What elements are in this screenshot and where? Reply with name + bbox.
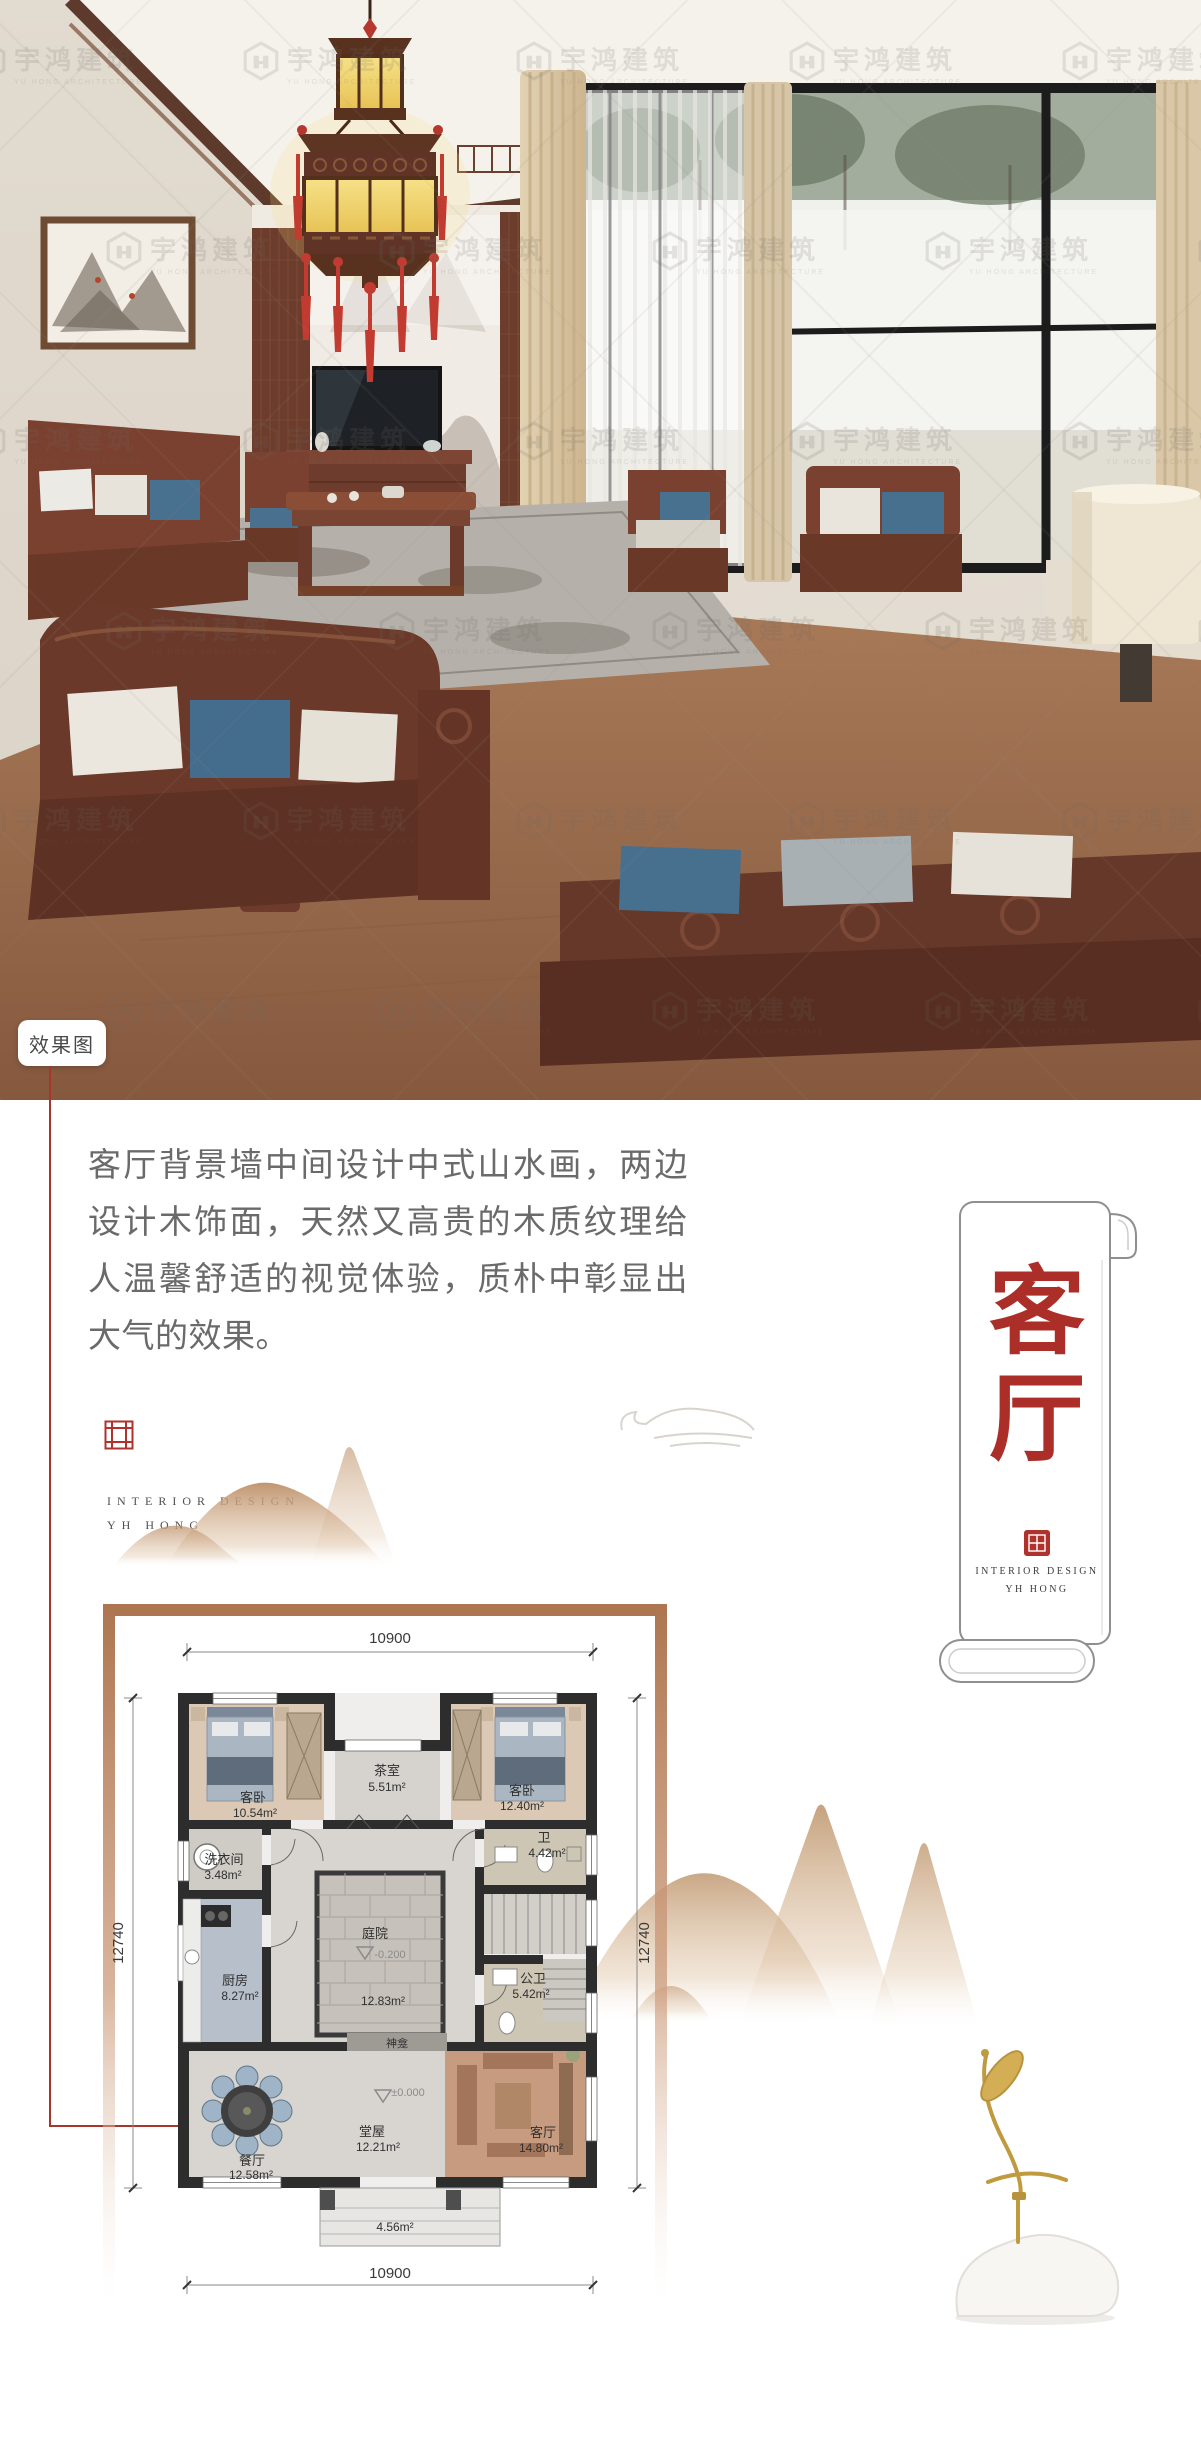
brand-hexagon-logo-icon	[652, 611, 688, 656]
brand-hexagon-logo-icon	[1062, 41, 1098, 86]
scroll-title-char1: 客	[989, 1259, 1085, 1366]
brand-hexagon-logo-icon	[516, 41, 552, 86]
svg-text:12.40m²: 12.40m²	[500, 1799, 544, 1813]
brand-hexagon-logo-icon	[379, 611, 415, 656]
svg-text:公卫: 公卫	[520, 1971, 546, 1986]
brand-watermark: 宇鸿建筑YU HONG ARCHITECTURE	[1062, 800, 1201, 846]
svg-text:4.56m²: 4.56m²	[376, 2220, 413, 2234]
svg-text:12.21m²: 12.21m²	[356, 2140, 400, 2154]
brand-watermark: 宇鸿建筑YU HONG ARCHITECTURE	[516, 800, 689, 846]
gold-branch-ornament	[930, 2030, 1130, 2330]
svg-text:茶室: 茶室	[374, 1763, 400, 1778]
brand-watermark: 宇鸿建筑YU HONG ARCHITECTURE	[652, 610, 825, 656]
brand-hexagon-logo-icon	[0, 41, 6, 86]
brand-hexagon-logo-icon	[243, 41, 279, 86]
svg-text:3.48m²: 3.48m²	[204, 1868, 241, 1882]
brand-hexagon-logo-icon	[652, 231, 688, 276]
svg-text:5.42m²: 5.42m²	[512, 1987, 549, 2001]
brand-hexagon-logo-icon	[379, 231, 415, 276]
svg-text:客厅: 客厅	[530, 2125, 556, 2140]
brand-hexagon-logo-icon	[789, 41, 825, 86]
scroll-title-char2: 厅	[989, 1366, 1085, 1473]
brand-hexagon-logo-icon	[1062, 801, 1098, 846]
brand-watermark: 宇鸿建筑YU HONG ARCHITECTURE	[106, 610, 279, 656]
svg-text:12.83m²: 12.83m²	[361, 1994, 405, 2008]
brand-hexagon-logo-icon	[652, 991, 688, 1036]
brand-hexagon-logo-icon	[789, 421, 825, 466]
brand-hexagon-logo-icon	[925, 991, 961, 1036]
brand-hexagon-logo-icon	[379, 991, 415, 1036]
svg-text:堂屋: 堂屋	[359, 2124, 385, 2139]
stone-base	[956, 2235, 1118, 2316]
brand-watermark: 宇鸿建筑YU HONG ARCHITECTURE	[1062, 420, 1201, 466]
brand-watermark: 宇鸿建筑YU HONG ARCHITECTURE	[652, 990, 825, 1036]
svg-text:12.58m²: 12.58m²	[229, 2168, 273, 2182]
brand-watermark: 宇鸿建筑YU HONG ARCHITECTURE	[106, 230, 279, 276]
svg-text:餐厅: 餐厅	[239, 2153, 265, 2168]
brand-watermark: 宇鸿建筑YU HONG ARCHITECTURE	[789, 40, 962, 86]
brand-watermark: 宇鸿建筑YU HONG ARCHITECTURE	[516, 40, 689, 86]
svg-text:客卧: 客卧	[509, 1783, 535, 1798]
brand-watermark: 宇鸿建筑YU HONG ARCHITECTURE	[789, 800, 962, 846]
svg-text:14.80m²: 14.80m²	[519, 2141, 563, 2155]
dim-right: 12740	[636, 1922, 653, 1964]
scroll-brand-line1: INTERIOR DESIGN	[975, 1566, 1098, 1577]
brand-watermark: 宇鸿建筑YU HONG ARCHITECTURE	[925, 230, 1098, 276]
poster-page: 宇鸿建筑YU HONG ARCHITECTURE宇鸿建筑YU HONG ARCH…	[0, 0, 1201, 2458]
scroll-seal	[1024, 1530, 1050, 1556]
connector-line-vertical	[49, 1066, 51, 2126]
brand-hexagon-logo-icon	[516, 801, 552, 846]
svg-text:庭院: 庭院	[362, 1926, 388, 1941]
brand-watermark: 宇鸿建筑YU HONG ARCHITECTURE	[106, 990, 279, 1036]
mountains-left	[85, 1432, 415, 1567]
svg-text:±0.000: ±0.000	[391, 2087, 425, 2099]
brand-watermark: 宇鸿建筑YU HONG ARCHITECTURE	[0, 800, 143, 846]
brand-hexagon-logo-icon	[0, 421, 6, 466]
brand-hexagon-logo-icon	[106, 231, 142, 276]
brand-watermark: 宇鸿建筑YU HONG ARCHITECTURE	[379, 990, 552, 1036]
brand-hexagon-logo-icon	[0, 801, 6, 846]
intro-paragraph: 客厅背景墙中间设计中式山水画，两边设计木饰面，天然又高贵的木质纹理给人温馨舒适的…	[88, 1136, 688, 1364]
living-room-render-photo: 宇鸿建筑YU HONG ARCHITECTURE宇鸿建筑YU HONG ARCH…	[0, 0, 1201, 1100]
brand-watermark: 宇鸿建筑YU HONG ARCHITECTURE	[516, 420, 689, 466]
brand-watermark: 宇鸿建筑YU HONG ARCHITECTURE	[379, 610, 552, 656]
brand-watermark: 宇鸿建筑YU HONG ARCHITECTURE	[1062, 40, 1201, 86]
brand-hexagon-logo-icon	[243, 801, 279, 846]
dining-table	[202, 2066, 292, 2156]
svg-text:卫: 卫	[537, 1830, 550, 1845]
brand-watermark: 宇鸿建筑YU HONG ARCHITECTURE	[0, 420, 143, 466]
brand-hexagon-logo-icon	[243, 421, 279, 466]
brand-hexagon-logo-icon	[1062, 421, 1098, 466]
dim-top: 10900	[369, 1630, 411, 1647]
svg-text:4.42m²: 4.42m²	[528, 1846, 565, 1860]
brand-watermark: 宇鸿建筑YU HONG ARCHITECTURE	[243, 800, 416, 846]
brand-watermark: 宇鸿建筑YU HONG ARCHITECTURE	[925, 610, 1098, 656]
svg-text:洗衣间: 洗衣间	[204, 1852, 243, 1867]
floor-plan: 10900 10900 12740 12740	[95, 1595, 675, 2365]
svg-text:神龛: 神龛	[386, 2036, 408, 2050]
brand-watermark: 宇鸿建筑YU HONG ARCHITECTURE	[243, 420, 416, 466]
brand-hexagon-logo-icon	[516, 421, 552, 466]
scroll-brand-line2: YH HONG	[1005, 1584, 1068, 1595]
svg-text:厨房: 厨房	[222, 1973, 248, 1988]
porch	[320, 2188, 500, 2246]
svg-text:客卧: 客卧	[240, 1790, 266, 1805]
brand-watermark: 宇鸿建筑YU HONG ARCHITECTURE	[243, 40, 416, 86]
svg-text:-0.200: -0.200	[374, 1949, 405, 1961]
watermark-layer: 宇鸿建筑YU HONG ARCHITECTURE宇鸿建筑YU HONG ARCH…	[0, 0, 1201, 1100]
svg-text:5.51m²: 5.51m²	[368, 1780, 405, 1794]
brand-watermark: 宇鸿建筑YU HONG ARCHITECTURE	[925, 990, 1098, 1036]
brand-hexagon-logo-icon	[925, 611, 961, 656]
dim-left: 12740	[110, 1922, 127, 1964]
svg-text:10.54m²: 10.54m²	[233, 1806, 277, 1820]
brand-watermark: 宇鸿建筑YU HONG ARCHITECTURE	[379, 230, 552, 276]
title-scroll: 客 厅 INTERIOR DESIGN YH HONG	[938, 1190, 1148, 1690]
room-living-highlight	[445, 2044, 586, 2177]
brand-watermark: 宇鸿建筑YU HONG ARCHITECTURE	[789, 420, 962, 466]
brand-hexagon-logo-icon	[106, 611, 142, 656]
brand-watermark: 宇鸿建筑YU HONG ARCHITECTURE	[652, 230, 825, 276]
brand-hexagon-logo-icon	[106, 991, 142, 1036]
brand-watermark: 宇鸿建筑YU HONG ARCHITECTURE	[0, 40, 143, 86]
cloud-motif	[600, 1396, 780, 1454]
brand-hexagon-logo-icon	[925, 231, 961, 276]
render-tag-label: 效果图	[18, 1020, 106, 1066]
svg-text:8.27m²: 8.27m²	[221, 1989, 258, 2003]
dim-bottom: 10900	[369, 2265, 411, 2282]
brand-hexagon-logo-icon	[789, 801, 825, 846]
